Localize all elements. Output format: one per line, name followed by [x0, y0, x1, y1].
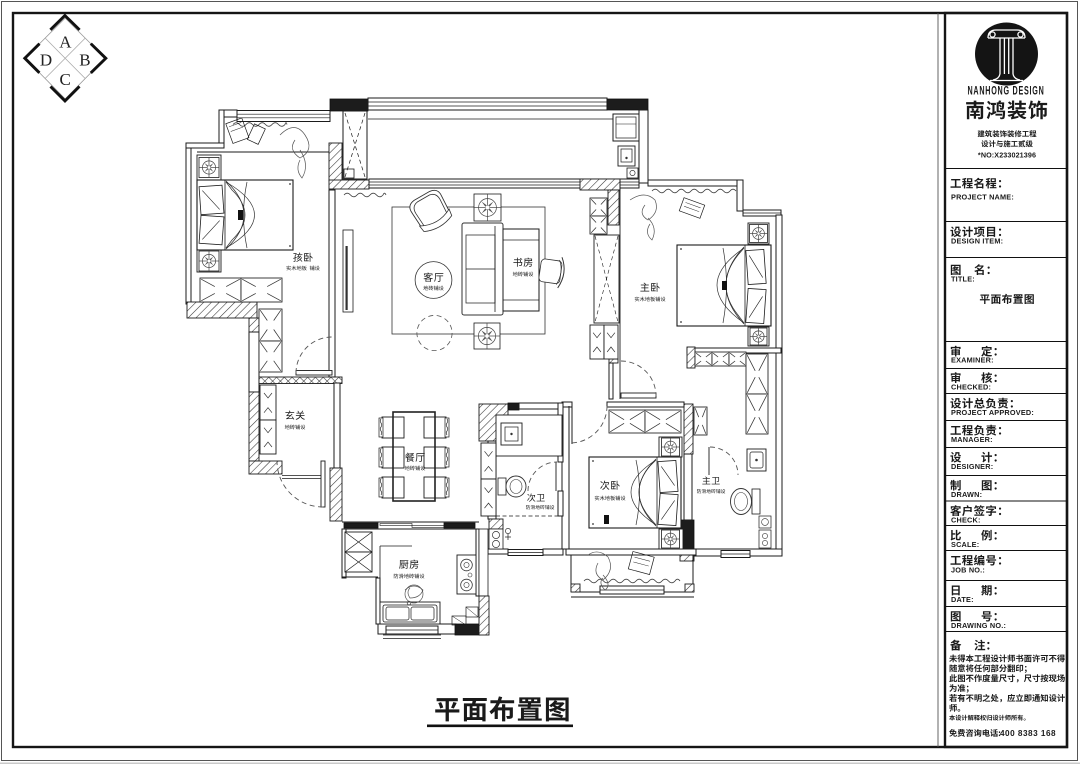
svg-text:C: C	[60, 70, 71, 89]
svg-text:CHECK:: CHECK:	[951, 516, 981, 525]
svg-text:PROJECT NAME:: PROJECT NAME:	[951, 193, 1014, 202]
svg-text:DRAWN:: DRAWN:	[951, 490, 982, 499]
svg-text:DESIGNER:: DESIGNER:	[951, 462, 993, 471]
svg-text:DRAWING NO.:: DRAWING NO.:	[951, 621, 1006, 630]
svg-text:CHECKED:: CHECKED:	[951, 383, 991, 392]
svg-text:DESIGN ITEM:: DESIGN ITEM:	[951, 237, 1003, 246]
svg-text:DATE:: DATE:	[951, 595, 974, 604]
svg-text:B: B	[79, 51, 90, 70]
svg-text:*NO:X233021396: *NO:X233021396	[978, 151, 1036, 160]
svg-text:PROJECT APPROVED:: PROJECT APPROVED:	[951, 408, 1034, 417]
svg-text:D: D	[40, 51, 52, 70]
svg-text:NANHONG DESIGN: NANHONG DESIGN	[968, 86, 1045, 98]
svg-text:400 8383 168: 400 8383 168	[1000, 729, 1056, 738]
svg-text:TITLE:: TITLE:	[951, 275, 975, 284]
svg-text:JOB NO.:: JOB NO.:	[951, 566, 985, 575]
svg-text:EXAMINER:: EXAMINER:	[951, 356, 994, 365]
svg-text:SCALE:: SCALE:	[951, 540, 979, 549]
svg-text:A: A	[59, 33, 72, 52]
svg-text:MANAGER:: MANAGER:	[951, 435, 993, 444]
